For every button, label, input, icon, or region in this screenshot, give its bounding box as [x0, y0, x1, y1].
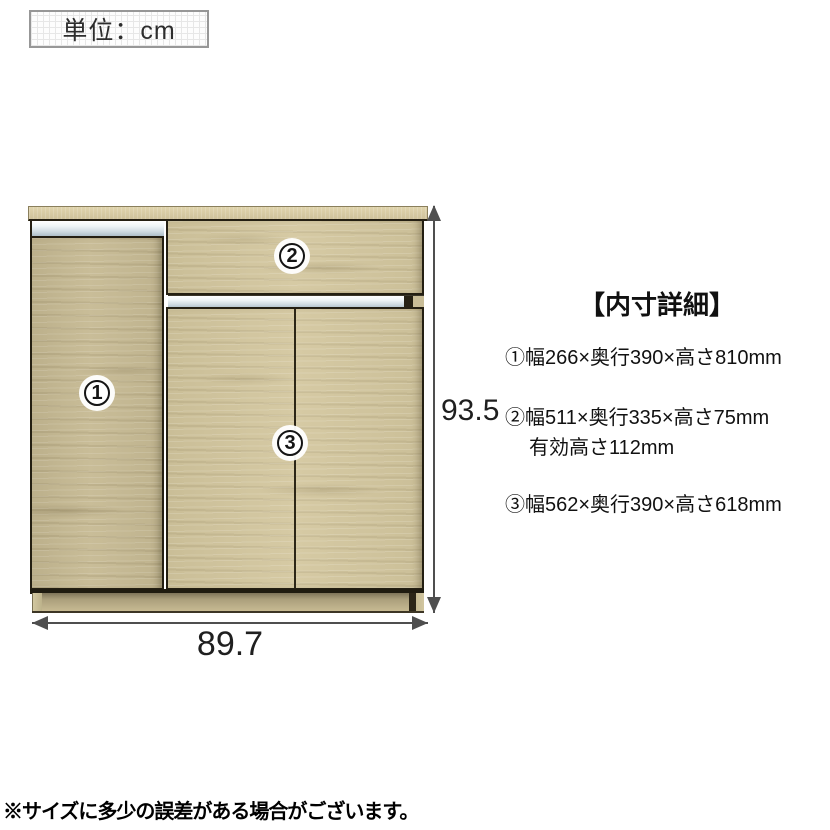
cabinet-base: [32, 593, 424, 613]
marker-circle-3: 3: [277, 430, 303, 456]
left-door-handle-trim: [30, 221, 164, 236]
marker-2-number: 2: [286, 246, 297, 266]
base-foot-left: [32, 593, 42, 611]
lower-doors-handle-trim: [168, 295, 424, 307]
inner-dimensions-title: 【内寸詳細】: [502, 285, 812, 322]
base-shadow-bar: [409, 593, 416, 611]
cabinet-diagram: 1 2 3: [28, 206, 428, 613]
height-dimension-line: [433, 206, 435, 613]
height-arrow-down-icon: [427, 597, 441, 613]
unit-label: 単位：cm: [62, 11, 175, 47]
marker-3-number: 3: [284, 433, 295, 453]
height-arrow-up-icon: [427, 205, 441, 221]
unit-box: 単位：cm: [29, 10, 209, 48]
product-dimension-diagram: 単位：cm 1 2 3: [0, 0, 830, 830]
base-front-panel: [42, 593, 409, 611]
inner-dimension-item-2-sub: 有効高さ112mm: [529, 431, 674, 460]
size-disclaimer-note: ※サイズに多少の誤差がある場合がございます。: [3, 795, 418, 824]
inner-dimension-item-1: ①幅266×奥行390×高さ810mm: [505, 341, 782, 370]
marker-circle-2: 2: [279, 243, 305, 269]
marker-1-number: 1: [91, 383, 102, 403]
left-door: [30, 236, 164, 590]
marker-circle-1: 1: [84, 380, 110, 406]
width-dimension-line: [32, 622, 428, 624]
width-value: 89.7: [30, 625, 430, 664]
inner-dimension-item-2: ②幅511×奥行335×高さ75mm: [505, 401, 769, 430]
inner-dimension-item-3: ③幅562×奥行390×高さ618mm: [505, 488, 782, 517]
height-value: 93.5: [441, 394, 499, 428]
base-foot-right: [416, 593, 424, 611]
